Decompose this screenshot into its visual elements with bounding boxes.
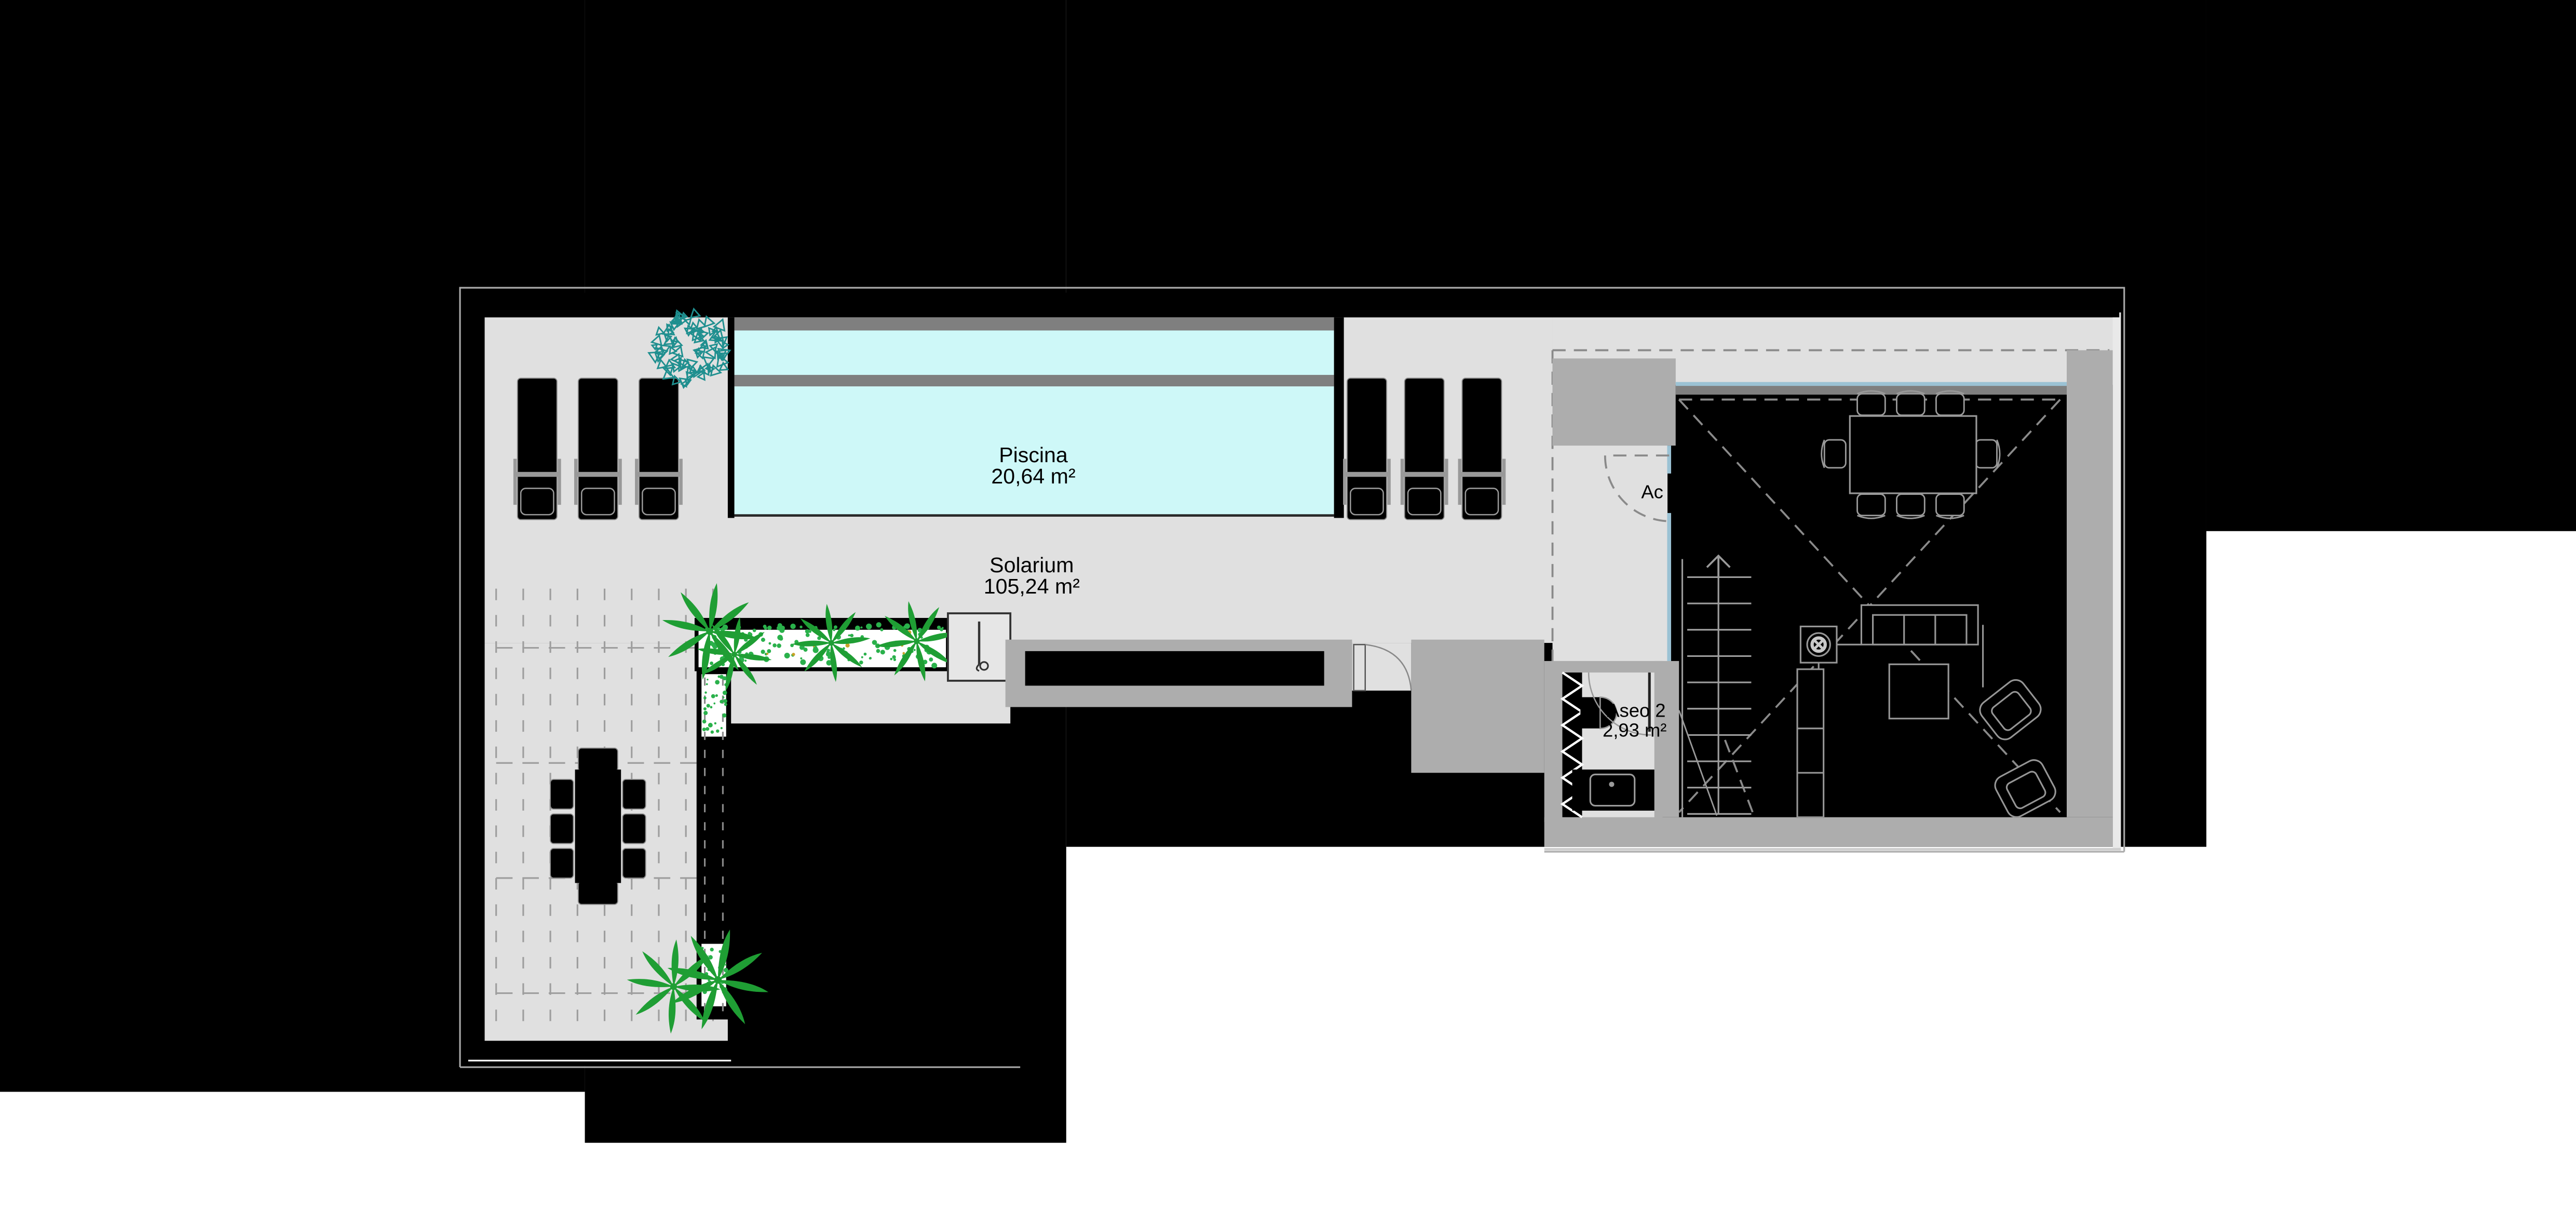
east-wall (2067, 350, 2113, 817)
dining-chair (1896, 494, 1924, 519)
pool-overflow-channel (735, 330, 1334, 374)
dining-chair (1975, 440, 2000, 468)
pool-area: 20,64 m² (991, 464, 1075, 488)
dining-table (1850, 416, 1976, 493)
dining-chair (1936, 391, 1964, 415)
solarium-area: 105,24 m² (984, 574, 1080, 598)
aseo-area: 2,93 m² (1603, 720, 1666, 741)
aseo-room (1544, 661, 1679, 822)
mask-right (2206, 0, 2576, 531)
dining-chair (1896, 391, 1924, 415)
lounger-icon (514, 378, 561, 519)
lounger-icon (1401, 378, 1447, 519)
lounger-icon (1459, 378, 1505, 519)
pool-label: Piscina 20,64 m² (991, 443, 1075, 488)
sink-vanity-icon (1572, 770, 1654, 811)
dining-chair (1936, 494, 1964, 519)
outdoor-shower (948, 613, 1010, 681)
lounger-icon (1344, 378, 1390, 519)
floor-plan: Piscina 20,64 m² Solarium 105,24 m² (0, 0, 2576, 1225)
dining-chair (1858, 391, 1886, 415)
access-label: Ac (1641, 481, 1663, 502)
lounger-icon (575, 378, 621, 519)
terrace-door-leaf (1354, 644, 1365, 691)
aseo-name: Aseo 2 (1607, 700, 1665, 721)
terrace-table (575, 770, 621, 883)
pool-name: Piscina (999, 443, 1068, 467)
entry-wall-block (1552, 358, 1675, 446)
dining-chair (1822, 440, 1846, 468)
floor-plan-canvas: Piscina 20,64 m² Solarium 105,24 m² (0, 0, 2576, 1225)
shelf-cabinet (1797, 669, 1824, 817)
lounger-icon (636, 378, 682, 519)
solarium-name: Solarium (989, 553, 1074, 577)
aseo-label: Aseo 2 2,93 m² (1603, 700, 1666, 741)
dining-chair (1858, 494, 1886, 519)
coffee-table (1889, 664, 1948, 718)
solarium-label: Solarium 105,24 m² (984, 553, 1080, 598)
